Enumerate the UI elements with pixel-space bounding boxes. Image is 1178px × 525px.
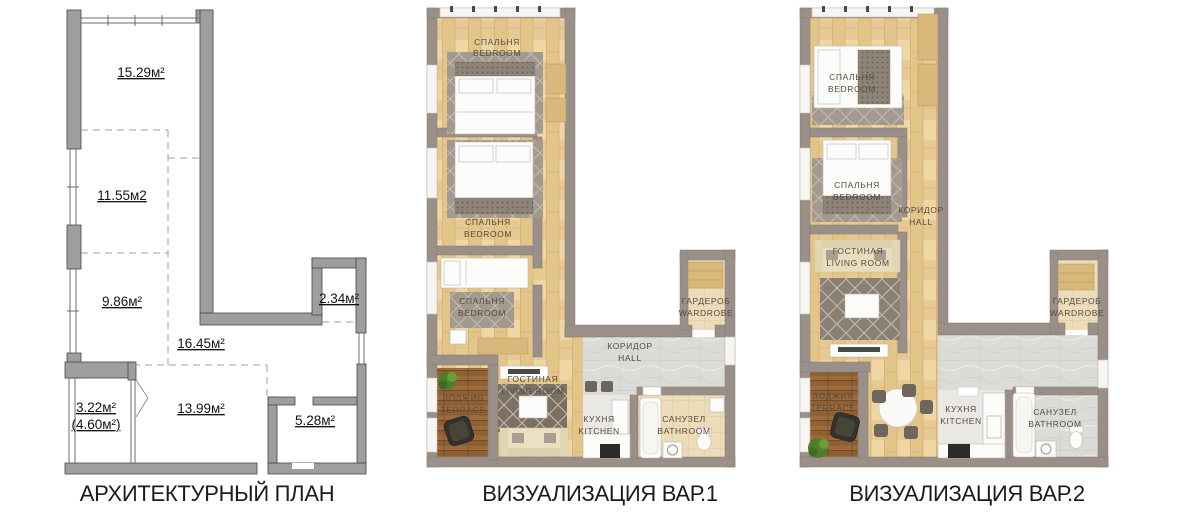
room-label-v2-loggia-en: TERRACE: [811, 403, 856, 413]
closet: [918, 64, 938, 106]
viz2-hall-floor: [938, 335, 1098, 390]
area-label-top-room: 15.29м²: [117, 65, 165, 80]
room-label-hall1-en: HALL: [618, 353, 642, 363]
viz2-living-room: ГОСТИНАЯ LIVING ROOM: [815, 240, 900, 357]
dining-chair: [920, 400, 933, 414]
room-label-v2-hall-ru: КОРИДОР: [898, 205, 943, 215]
room-label-v2-kitchen-en: KITCHEN: [940, 416, 982, 426]
wardrobe-unit: [1058, 264, 1094, 290]
room-label-living1-ru: ГОСТИНАЯ: [508, 374, 559, 384]
nightstand: [450, 330, 466, 344]
desk: [478, 338, 528, 354]
area-label-terrace: 3.22м²: [76, 400, 117, 415]
sofa-pillow: [512, 433, 524, 443]
room-label-v2-bedroom1-ru: СПАЛЬНЯ: [829, 72, 875, 82]
bar-stool: [601, 381, 613, 392]
room-label-bedroom1-ru: СПАЛЬНЯ: [474, 37, 520, 47]
room-label-bedroom1-en: BEDROOM: [473, 48, 521, 58]
stove: [948, 444, 970, 458]
room-label-wardrobe1-en: WARDROBE: [679, 308, 734, 318]
room-label-bathroom1-ru: САНУЗЕЛ: [662, 414, 706, 424]
caption-visualization-2: ВИЗУАЛИЗАЦИЯ ВАР.2: [849, 481, 1085, 506]
room-label-bedroom3-ru: СПАЛЬНЯ: [459, 296, 505, 306]
closet: [918, 14, 938, 60]
area-label-lower-room: 9.86м²: [102, 294, 143, 309]
caption-visualization-1: ВИЗУАЛИЗАЦИЯ ВАР.1: [482, 481, 718, 506]
viz1-living-room: ГОСТИНАЯ LIVING ROOM: [498, 366, 568, 456]
dining-chair: [904, 426, 918, 439]
room-label-bedroom2-en: BEDROOM: [464, 229, 512, 239]
viz2-bedroom-2: СПАЛЬНЯ BEDROOM: [812, 140, 902, 222]
tv: [838, 347, 880, 352]
room-label-v2-bedroom2-en: BEDROOM: [833, 192, 881, 202]
room-label-v2-hall-en: HALL: [909, 217, 933, 227]
room-label-v2-kitchen-ru: КУХНЯ: [945, 404, 976, 414]
room-label-v2-bathroom-ru: САНУЗЕЛ: [1033, 407, 1077, 417]
washing-machine: [663, 442, 682, 458]
caption-architectural-plan: АРХИТЕКТУРНЫЙ ПЛАН: [80, 481, 335, 506]
panel-visualization-1: СПАЛЬНЯ BEDROOM СПАЛЬНЯ BEDROOM СПАЛЬНЯ …: [427, 6, 735, 506]
room-label-v2-bedroom1-en: BEDROOM: [828, 84, 876, 94]
sink: [710, 398, 724, 412]
floor-plans-canvas: 15.29м² 11.55м2 9.86м² 16.45м² 2.34м² 3.…: [0, 0, 1178, 525]
area-label-hall: 16.45м²: [177, 336, 225, 351]
room-label-v2-living-en: LIVING ROOM: [826, 258, 889, 268]
dining-chair: [872, 390, 886, 403]
room-label-kitchen1-ru: КУХНЯ: [583, 414, 614, 424]
sofa-pillow: [544, 433, 556, 443]
room-label-bedroom3-en: BEDROOM: [458, 308, 506, 318]
panel-visualization-2: СПАЛЬНЯ BEDROOM СПАЛЬНЯ BEDROOM КОРИДОР …: [800, 6, 1108, 506]
room-label-v2-wardrobe-en: WARDROBE: [1050, 308, 1105, 318]
closet: [546, 64, 566, 94]
room-label-v2-living-ru: ГОСТИНАЯ: [833, 246, 884, 256]
area-label-niche: 2.34м²: [319, 291, 360, 306]
plan-door-swing: [136, 380, 148, 417]
coffee-table: [845, 294, 879, 318]
floor-plans-image: 15.29м² 11.55м2 9.86м² 16.45м² 2.34м² 3.…: [0, 0, 1178, 525]
room-label-living1-en: LIVING ROOM: [501, 386, 564, 396]
room-label-bathroom1-en: BATHROOM: [657, 426, 710, 436]
area-label-living: 13.99м²: [177, 401, 225, 416]
bar-stool: [585, 381, 597, 392]
room-label-kitchen1-en: KITCHEN: [578, 426, 620, 436]
stove: [600, 444, 620, 458]
coffee-table: [519, 396, 547, 418]
plan-windows: [67, 15, 364, 463]
room-label-v2-bedroom2-ru: СПАЛЬНЯ: [834, 180, 880, 190]
dining-chair: [874, 424, 888, 437]
panel-architectural-plan: 15.29м² 11.55м2 9.86м² 16.45м² 2.34м² 3.…: [65, 10, 366, 506]
area-label-terrace-alt: (4.60м²): [71, 417, 120, 432]
wardrobe-unit: [688, 262, 723, 288]
washing-machine: [1036, 441, 1056, 457]
room-label-v2-loggia-ru: ЛОДЖИЯ: [812, 391, 853, 401]
room-label-loggia1-en: TERRACE: [441, 405, 486, 415]
room-label-hall1-ru: КОРИДОР: [607, 341, 652, 351]
area-label-middle-room: 11.55м2: [97, 188, 147, 203]
area-label-bathroom: 5.28м²: [295, 413, 336, 428]
room-label-bedroom2-ru: СПАЛЬНЯ: [465, 217, 511, 227]
room-label-wardrobe1-ru: ГАРДЕРОБ: [682, 296, 731, 306]
closet: [546, 98, 566, 122]
room-label-v2-bathroom-en: BATHROOM: [1028, 419, 1081, 429]
dining-chair: [902, 384, 916, 397]
room-label-loggia1-ru: ЛОДЖИЯ: [442, 393, 483, 403]
room-label-v2-wardrobe-ru: ГАРДЕРОБ: [1053, 296, 1102, 306]
